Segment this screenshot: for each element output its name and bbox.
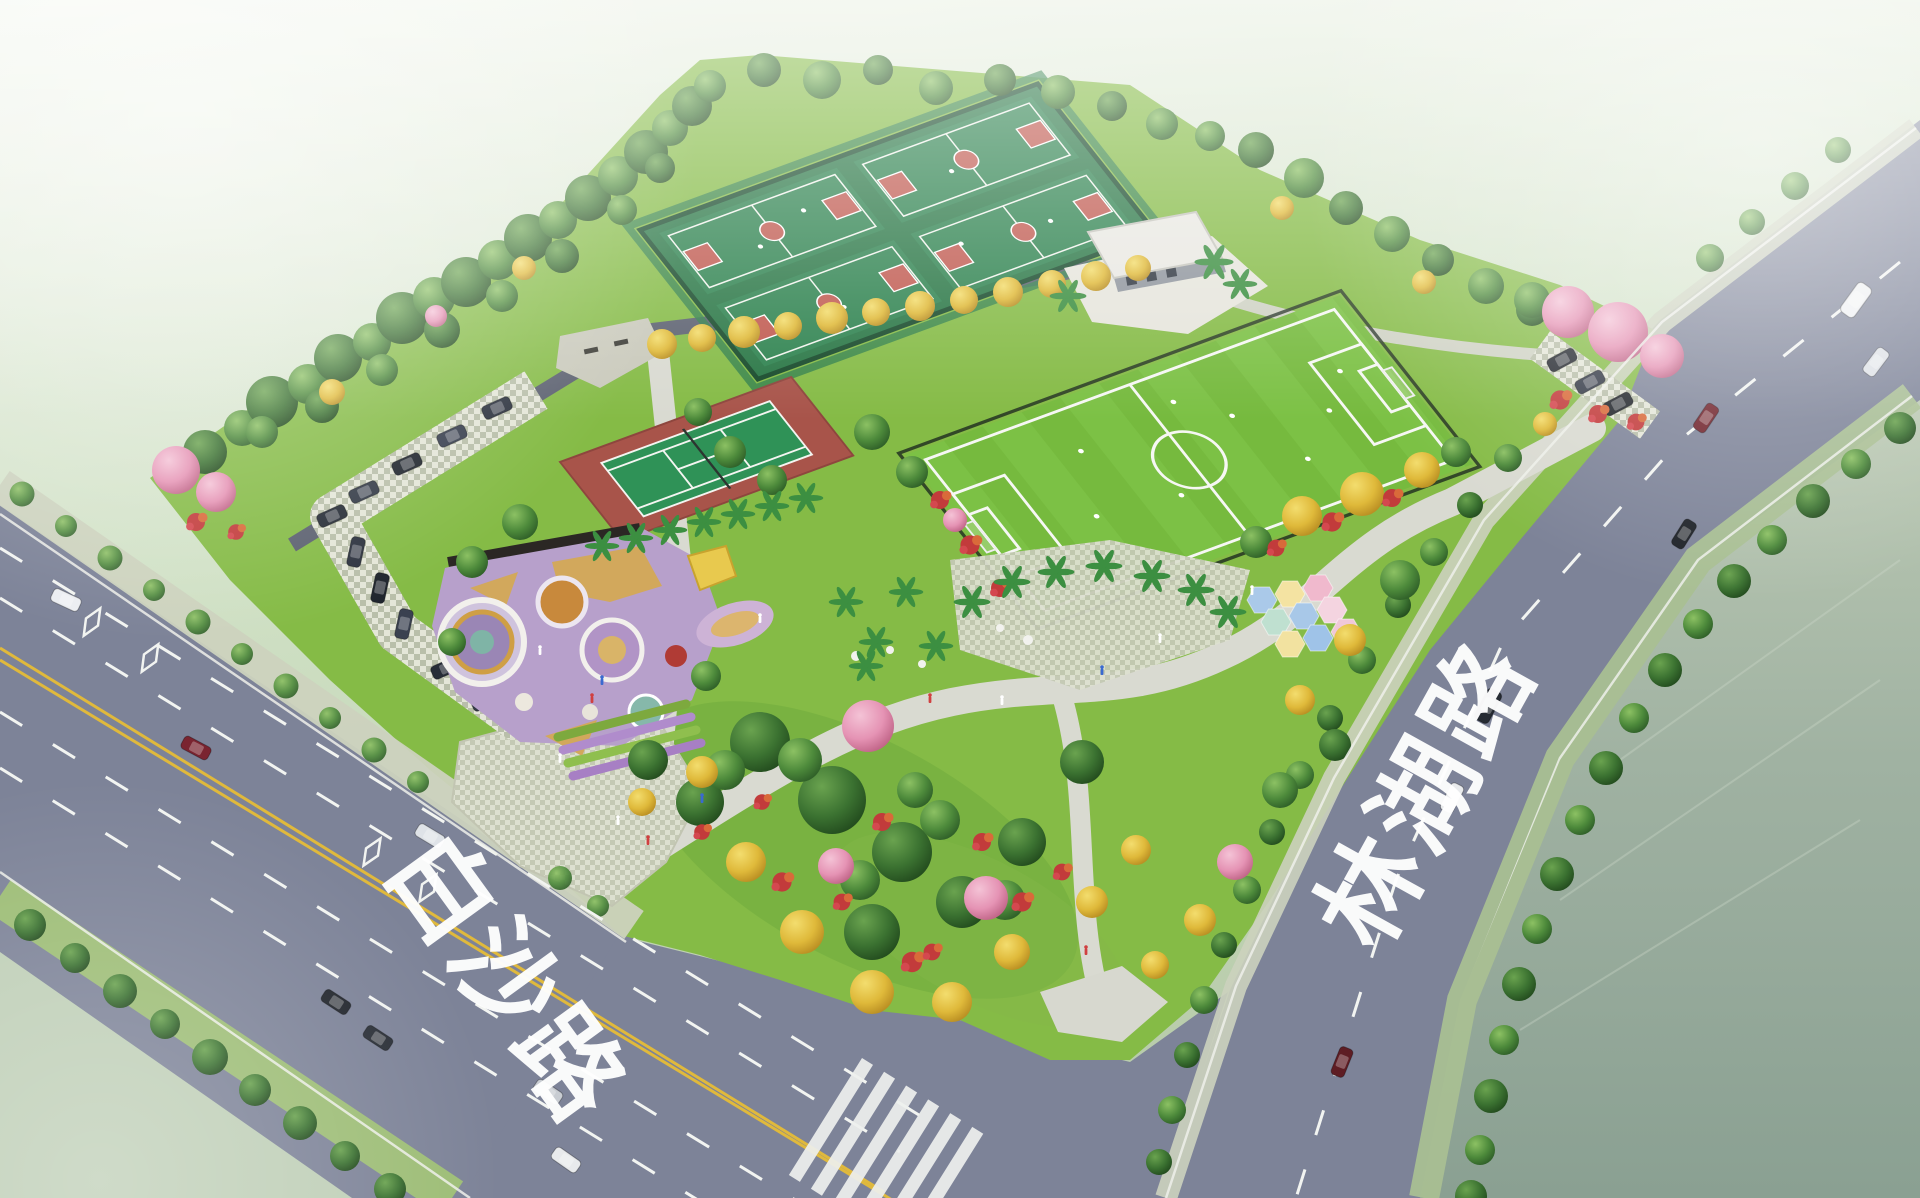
haze-top-right [1300, 0, 1920, 600]
haze-bottom-left [0, 780, 500, 1198]
park-plan-rendering: 白沙路 林湖路 [0, 0, 1920, 1198]
scene-svg: 白沙路 林湖路 [0, 0, 1920, 1198]
haze-top-left [0, 0, 700, 640]
